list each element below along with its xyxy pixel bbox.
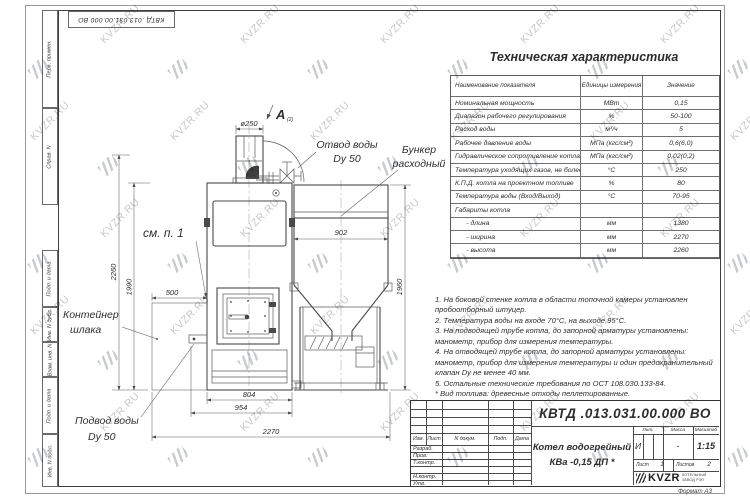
spec-cell: 250 [643,164,719,177]
mass-value: - [663,434,693,459]
grid-line [653,434,654,459]
svg-text:Dy 50: Dy 50 [333,153,361,165]
watermark-logo-mark-icon [727,57,750,80]
view-a-label: А (2) [267,105,293,123]
dim-500: 500 [152,288,207,301]
dim-954: 954 [191,346,292,417]
slag-container [152,303,207,390]
lit-value: И [633,434,643,459]
spec-cell: мм [581,231,643,244]
dim-1990: 1990 [125,183,151,390]
spec-cell: Габариты котла [451,204,581,217]
ash-drawer [212,350,287,383]
fuel-note: * Вид топлива: древесные отходы пеллетир… [435,389,725,399]
svg-text:(2): (2) [287,117,293,123]
water-outlet-label: Отвод воды Dy 50 [298,139,378,168]
svg-text:Dy 50: Dy 50 [88,431,116,443]
margin-field-podp-data-2: Подп. и дата [42,377,58,434]
col-izm: Изм. [411,433,426,445]
spec-table-rows: Номинальная мощностьМВт0,15Диапазон рабо… [451,97,719,258]
spec-cell: 80 [643,177,719,190]
svg-text:1960: 1960 [395,278,404,296]
svg-text:Подвод воды: Подвод воды [75,415,139,427]
watermark-logo-mark-icon [727,445,750,468]
margin-field-podp-data-1: Подп. и дата [42,250,58,307]
spec-cell: Температура уходящих газов, не более [451,164,581,177]
svg-text:ø250: ø250 [240,119,258,128]
spec-cell: Номинальная мощность [451,97,581,110]
sheet-label: Лист [636,459,654,471]
svg-text:804: 804 [243,390,256,399]
margin-field-vzam-inv: Взам. инв. N [42,342,58,377]
kvzr-logo-mark-icon [636,472,646,483]
grid-line [411,480,531,481]
boiler-drawing: ø250 А (2) Отвод воды Dy 50 [58,100,448,445]
row-prov: Пров. [411,453,428,459]
svg-text:см. п. 1: см. п. 1 [143,226,184,240]
row-razrab: Разраб. [411,446,433,452]
see-note-label: см. п. 1 [143,226,206,297]
kvzr-logo-text: KVZR [648,472,680,484]
grid-line [411,466,531,467]
spec-col-units: Единицы измерения [581,76,643,97]
spec-cell: Диапазон рабочего регулирования [451,110,581,123]
spec-cell: - высота [451,244,581,257]
watermark-logo-mark-icon [727,251,750,274]
svg-text:Контейнер: Контейнер [63,309,119,321]
svg-text:2260: 2260 [109,263,118,282]
water-inlet-label: Подвод воды Dy 50 [75,344,194,443]
spec-cell: Расход воды [451,124,581,137]
spec-cell: Гидравлическое сопротивление котла [451,151,581,164]
doc-name-line2: КВа -0,15 ДП * [550,456,615,470]
scale-value: 1:15 [693,434,719,459]
format-label: Формат А3 [645,488,745,495]
manufacturer-name-line2: ЗАВОД РЭП [682,478,706,483]
dim-2260: 2260 [109,155,148,390]
top-stamp-doc-number: КВТД .013.031.00.000 ВО [68,11,175,28]
spec-cell: мм [581,244,643,257]
spec-cell [581,204,643,217]
spec-cell: МПа (кгс/см²) [581,151,643,164]
spec-col-name: Наименование показателя [451,76,581,97]
boiler-body [204,183,295,390]
spec-cell: м³/ч [581,124,643,137]
spec-cell: Рабочее давление воды [451,137,581,150]
sheets-value: 2 [702,459,716,471]
col-ndocum: N докум. [442,433,488,445]
spec-cell: 0,6(6,0) [643,137,719,150]
spec-cell: - длина [451,218,581,231]
grid-line [411,425,531,426]
svg-text:1990: 1990 [125,278,134,296]
note-item: 4. На отводящей трубе котла, до запорной… [435,347,725,378]
svg-text:шлака: шлака [70,324,101,336]
col-list: Лист [426,433,442,445]
svg-text:Бункер: Бункер [402,144,436,156]
spec-cell: МВт [581,97,643,110]
watermark-text: KVZR.RU [728,293,750,337]
spec-cell: 2260 [643,244,719,257]
sheets-label: Листов [676,459,700,471]
margin-field-inv-podl: Инв. N подл. [42,434,58,487]
col-podp: Подп. [488,433,513,445]
svg-text:2270: 2270 [262,427,281,436]
svg-text:902: 902 [335,228,348,237]
sheet-value: 1 [654,459,670,471]
dim-1960: 1960 [390,185,411,390]
spec-cell: 2270 [643,231,719,244]
note-item: 1. На боковой стенке котла в области топ… [435,295,725,316]
doc-name: Котел водогрейный КВа -0,15 ДП * [531,426,633,485]
spec-cell: % [581,110,643,123]
dim-2270: 2270 [152,392,390,441]
grid-line [643,434,644,459]
spec-cell: - ширина [451,231,581,244]
note-item: 3. На подводящей трубе котла, до запорно… [435,326,725,347]
spec-cell: 0,15 [643,97,719,110]
furnace-door [217,288,279,344]
title-block: КВТД .013.031.00.000 ВО Изм. Лист N доку… [410,400,721,487]
svg-text:А: А [275,107,285,122]
watermark-text: KVZR.RU [0,196,2,240]
spec-cell: % [581,177,643,190]
doc-name-line1: Котел водогрейный [533,441,631,455]
spec-table-header: Наименование показателя Единицы измерени… [451,76,719,97]
water-inlet-stub [189,335,207,343]
margin-field-perv-primen: Перв. примен. [42,10,58,108]
row-nkontr: Н.контр. [411,474,436,480]
spec-cell: Температура воды (Вход/Выход) [451,191,581,204]
spec-cell [643,204,719,217]
drawing-sheet: Перв. примен. Справ. N Подп. и дата Инв.… [0,0,750,500]
col-data: Дата [513,433,531,445]
spec-cell: 5 [643,124,719,137]
dim-804: 804 [207,390,292,404]
spec-cell: МПа (кгс/см²) [581,137,643,150]
spec-cell: °С [581,191,643,204]
dim-chimney-diameter: ø250 [236,119,263,134]
margin-field-sprav-n: Справ. N [42,108,58,205]
technical-notes: 1. На боковой стенке котла в области топ… [435,295,725,400]
grid-line [411,452,531,453]
svg-text:Отвод воды: Отвод воды [316,139,378,151]
note-item: 5. Остальные технические требования по О… [435,379,725,389]
spec-cell: 50-100 [643,110,719,123]
spec-col-value: Значение [643,76,719,97]
svg-text:954: 954 [235,403,248,412]
svg-text:расходный: расходный [392,158,446,170]
slag-container-label: Контейнер шлака [63,309,158,340]
watermark-text: KVZR.RU [0,390,2,434]
spec-cell: К.П.Д. котла на проектном топливе [451,177,581,190]
watermark-text: KVZR.RU [0,2,2,46]
note-item: 2. Температура воды на входе 70°С, на вы… [435,316,725,326]
spec-cell: °С [581,164,643,177]
spec-cell: мм [581,218,643,231]
row-utv: Утв. [411,481,426,487]
margin-field-inv-dubl: Инв. N дубл. [42,307,58,342]
grid-line [411,417,531,418]
notes-list: 1. На боковой стенке котла в области топ… [435,295,725,389]
manufacturer-name: КОТЕЛЬНЫЙ ЗАВОД РЭП [682,473,706,483]
spec-table-title: Техническая характеристика [450,50,718,64]
spec-cell: 70-95 [643,191,719,204]
spec-cell: 1380 [643,218,719,231]
watermark-text: KVZR.RU [728,99,750,143]
svg-text:500: 500 [166,288,179,297]
grid-line [411,409,531,410]
spec-cell: 0,02(0,2) [643,151,719,164]
manufacturer-logo: KVZR КОТЕЛЬНЫЙ ЗАВОД РЭП [633,471,719,485]
doc-number: КВТД .013.031.00.000 ВО [531,401,719,426]
grid-line [673,459,674,471]
row-tkontr: Т.контр. [411,460,435,466]
spec-table: Наименование показателя Единицы измерени… [450,75,720,259]
